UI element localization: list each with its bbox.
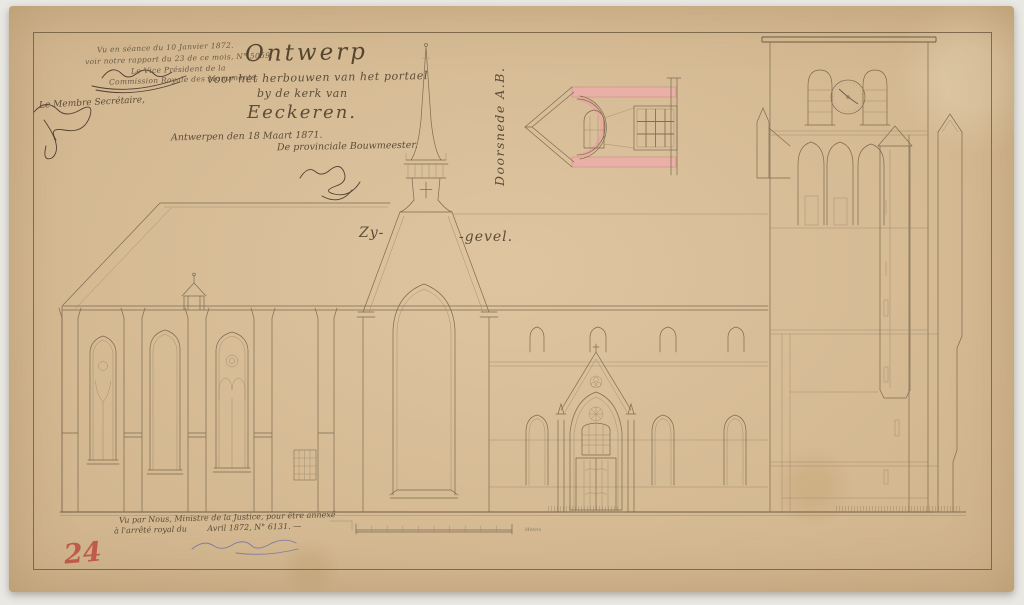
choir-elevation — [59, 203, 768, 512]
bell-tower — [757, 37, 936, 512]
title-line3: by de kerk van — [257, 88, 348, 99]
elevation-label-right: -gevel. — [459, 230, 513, 244]
paper-sheet: Vu en séance du 10 Janvier 1872. voir no… — [9, 6, 1014, 592]
title-line4: Eeckeren. — [247, 104, 357, 122]
title-author: De provinciale Bouwmeester. — [277, 141, 418, 153]
scale-bar — [330, 521, 512, 534]
title-line1: Ontwerp — [245, 41, 368, 66]
clock-face — [831, 80, 865, 114]
inventory-number: 24 — [63, 538, 103, 568]
section-plan — [525, 78, 681, 175]
stair-turret — [878, 126, 912, 398]
signature-minister — [192, 540, 298, 554]
architectural-drawing — [9, 6, 1014, 592]
scale-unit-label: Meters — [525, 529, 541, 534]
buttress-profile — [928, 114, 966, 512]
signature-architect — [300, 166, 360, 199]
scanned-drawing-page: Vu en séance du 10 Janvier 1872. voir no… — [0, 0, 1024, 605]
section-label: Doorsnede A.B. — [494, 67, 507, 186]
elevation-label-left: Zy- — [359, 226, 384, 240]
transept-gable — [357, 212, 498, 512]
signature-secretary — [34, 104, 91, 158]
